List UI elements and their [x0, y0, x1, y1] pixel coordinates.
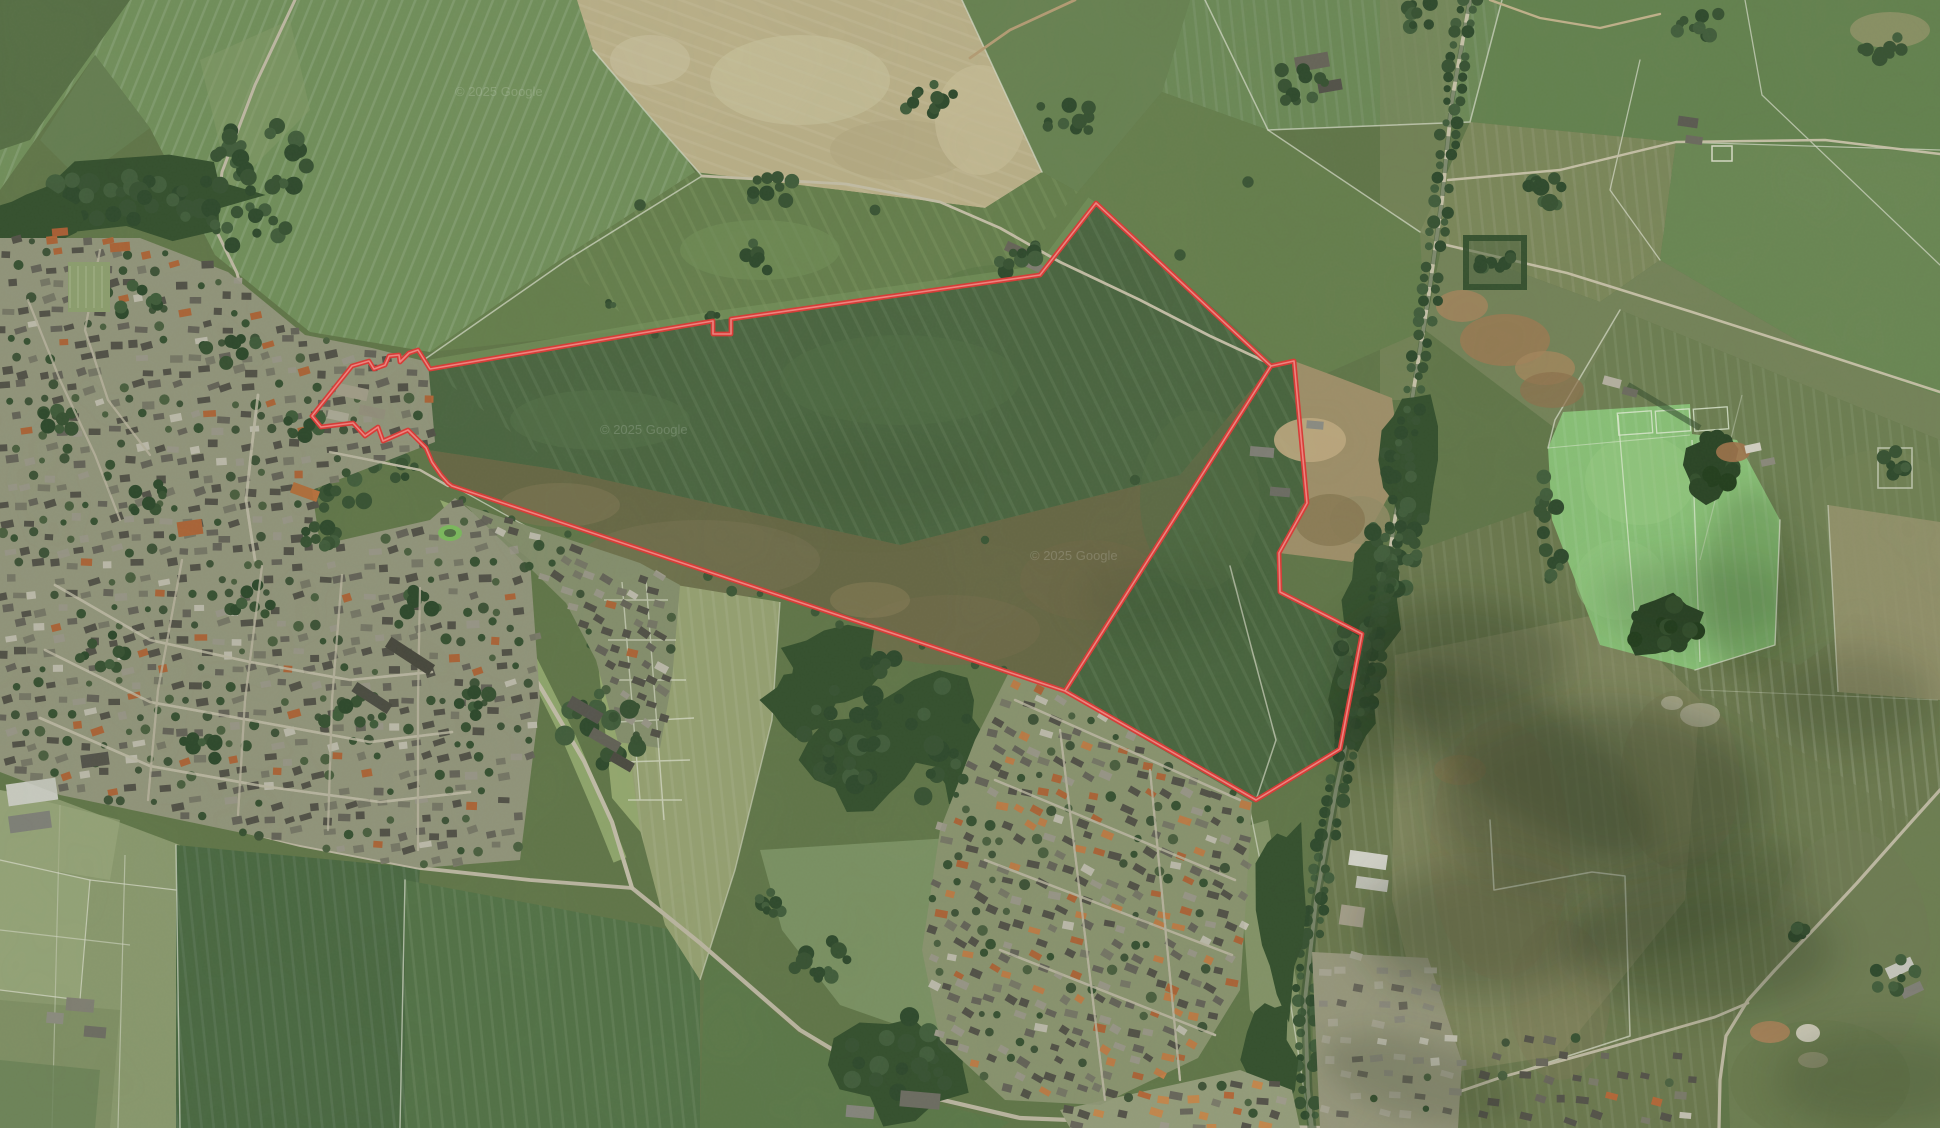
svg-text:© 2025 Google: © 2025 Google	[600, 422, 688, 437]
svg-text:© 2025 Google: © 2025 Google	[455, 84, 543, 99]
svg-text:© 2025 Google: © 2025 Google	[1030, 548, 1118, 563]
